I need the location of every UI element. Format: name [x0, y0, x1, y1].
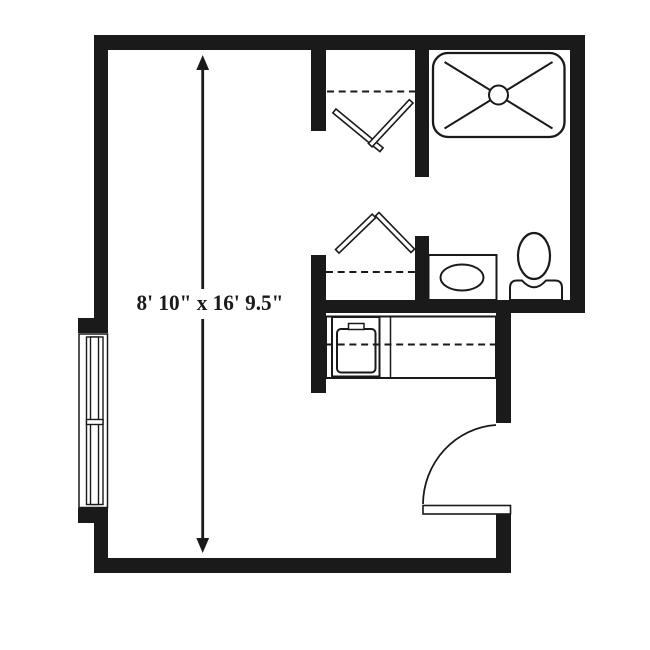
window-meeting-rail [87, 420, 104, 425]
wall-left-upper [94, 50, 108, 318]
wall-bathroom-south [311, 300, 585, 313]
closet-lower [326, 213, 415, 273]
floor-plan-page: 8' 10" x 16' 9.5" [0, 0, 650, 650]
toilet-tank [510, 281, 562, 301]
wall-closet-right-lower [415, 236, 429, 300]
closet-upper [327, 92, 415, 152]
wall-entry-above-door [496, 313, 511, 423]
closet-rod-bar [333, 109, 383, 152]
shower-drain [489, 86, 508, 105]
bathroom-sink-icon [441, 265, 484, 291]
window-icon [79, 334, 108, 508]
wall-closet-lower-kitchen-left [311, 255, 326, 393]
wall-top [94, 35, 585, 50]
floor-plan: 8' 10" x 16' 9.5" [0, 0, 650, 650]
wall-closet-right-upper [415, 50, 429, 177]
door-swing-arc [423, 425, 496, 504]
room-dimension-label: 8' 10" x 16' 9.5" [137, 290, 284, 315]
arrow-head-up-icon [196, 55, 209, 70]
door-leaf [423, 506, 511, 515]
shower-icon [433, 53, 565, 137]
kitchenette [326, 317, 496, 379]
closet-rod-lower-icon [336, 213, 415, 254]
wall-left-lower [94, 523, 108, 558]
wall-right-upper [570, 50, 585, 313]
dimension-annotation: 8' 10" x 16' 9.5" [134, 55, 286, 553]
closet-rod-bar [375, 213, 414, 253]
window-jamb-top [78, 318, 108, 333]
bathroom-fixtures [429, 233, 563, 300]
wall-entry-below-door [496, 513, 511, 573]
window-jamb-bottom [78, 508, 108, 523]
wall-closet-upper-left [311, 50, 326, 131]
closet-rod-bar [336, 214, 376, 253]
entry-door-icon [423, 425, 511, 514]
toilet-bowl-icon [518, 233, 550, 279]
wall-bottom [94, 558, 511, 573]
closet-rod-upper-icon [333, 100, 413, 152]
closet-rod-bar [368, 100, 413, 147]
arrow-head-down-icon [196, 538, 209, 553]
kitchen-sink-icon [337, 329, 376, 373]
faucet-icon [349, 324, 365, 330]
